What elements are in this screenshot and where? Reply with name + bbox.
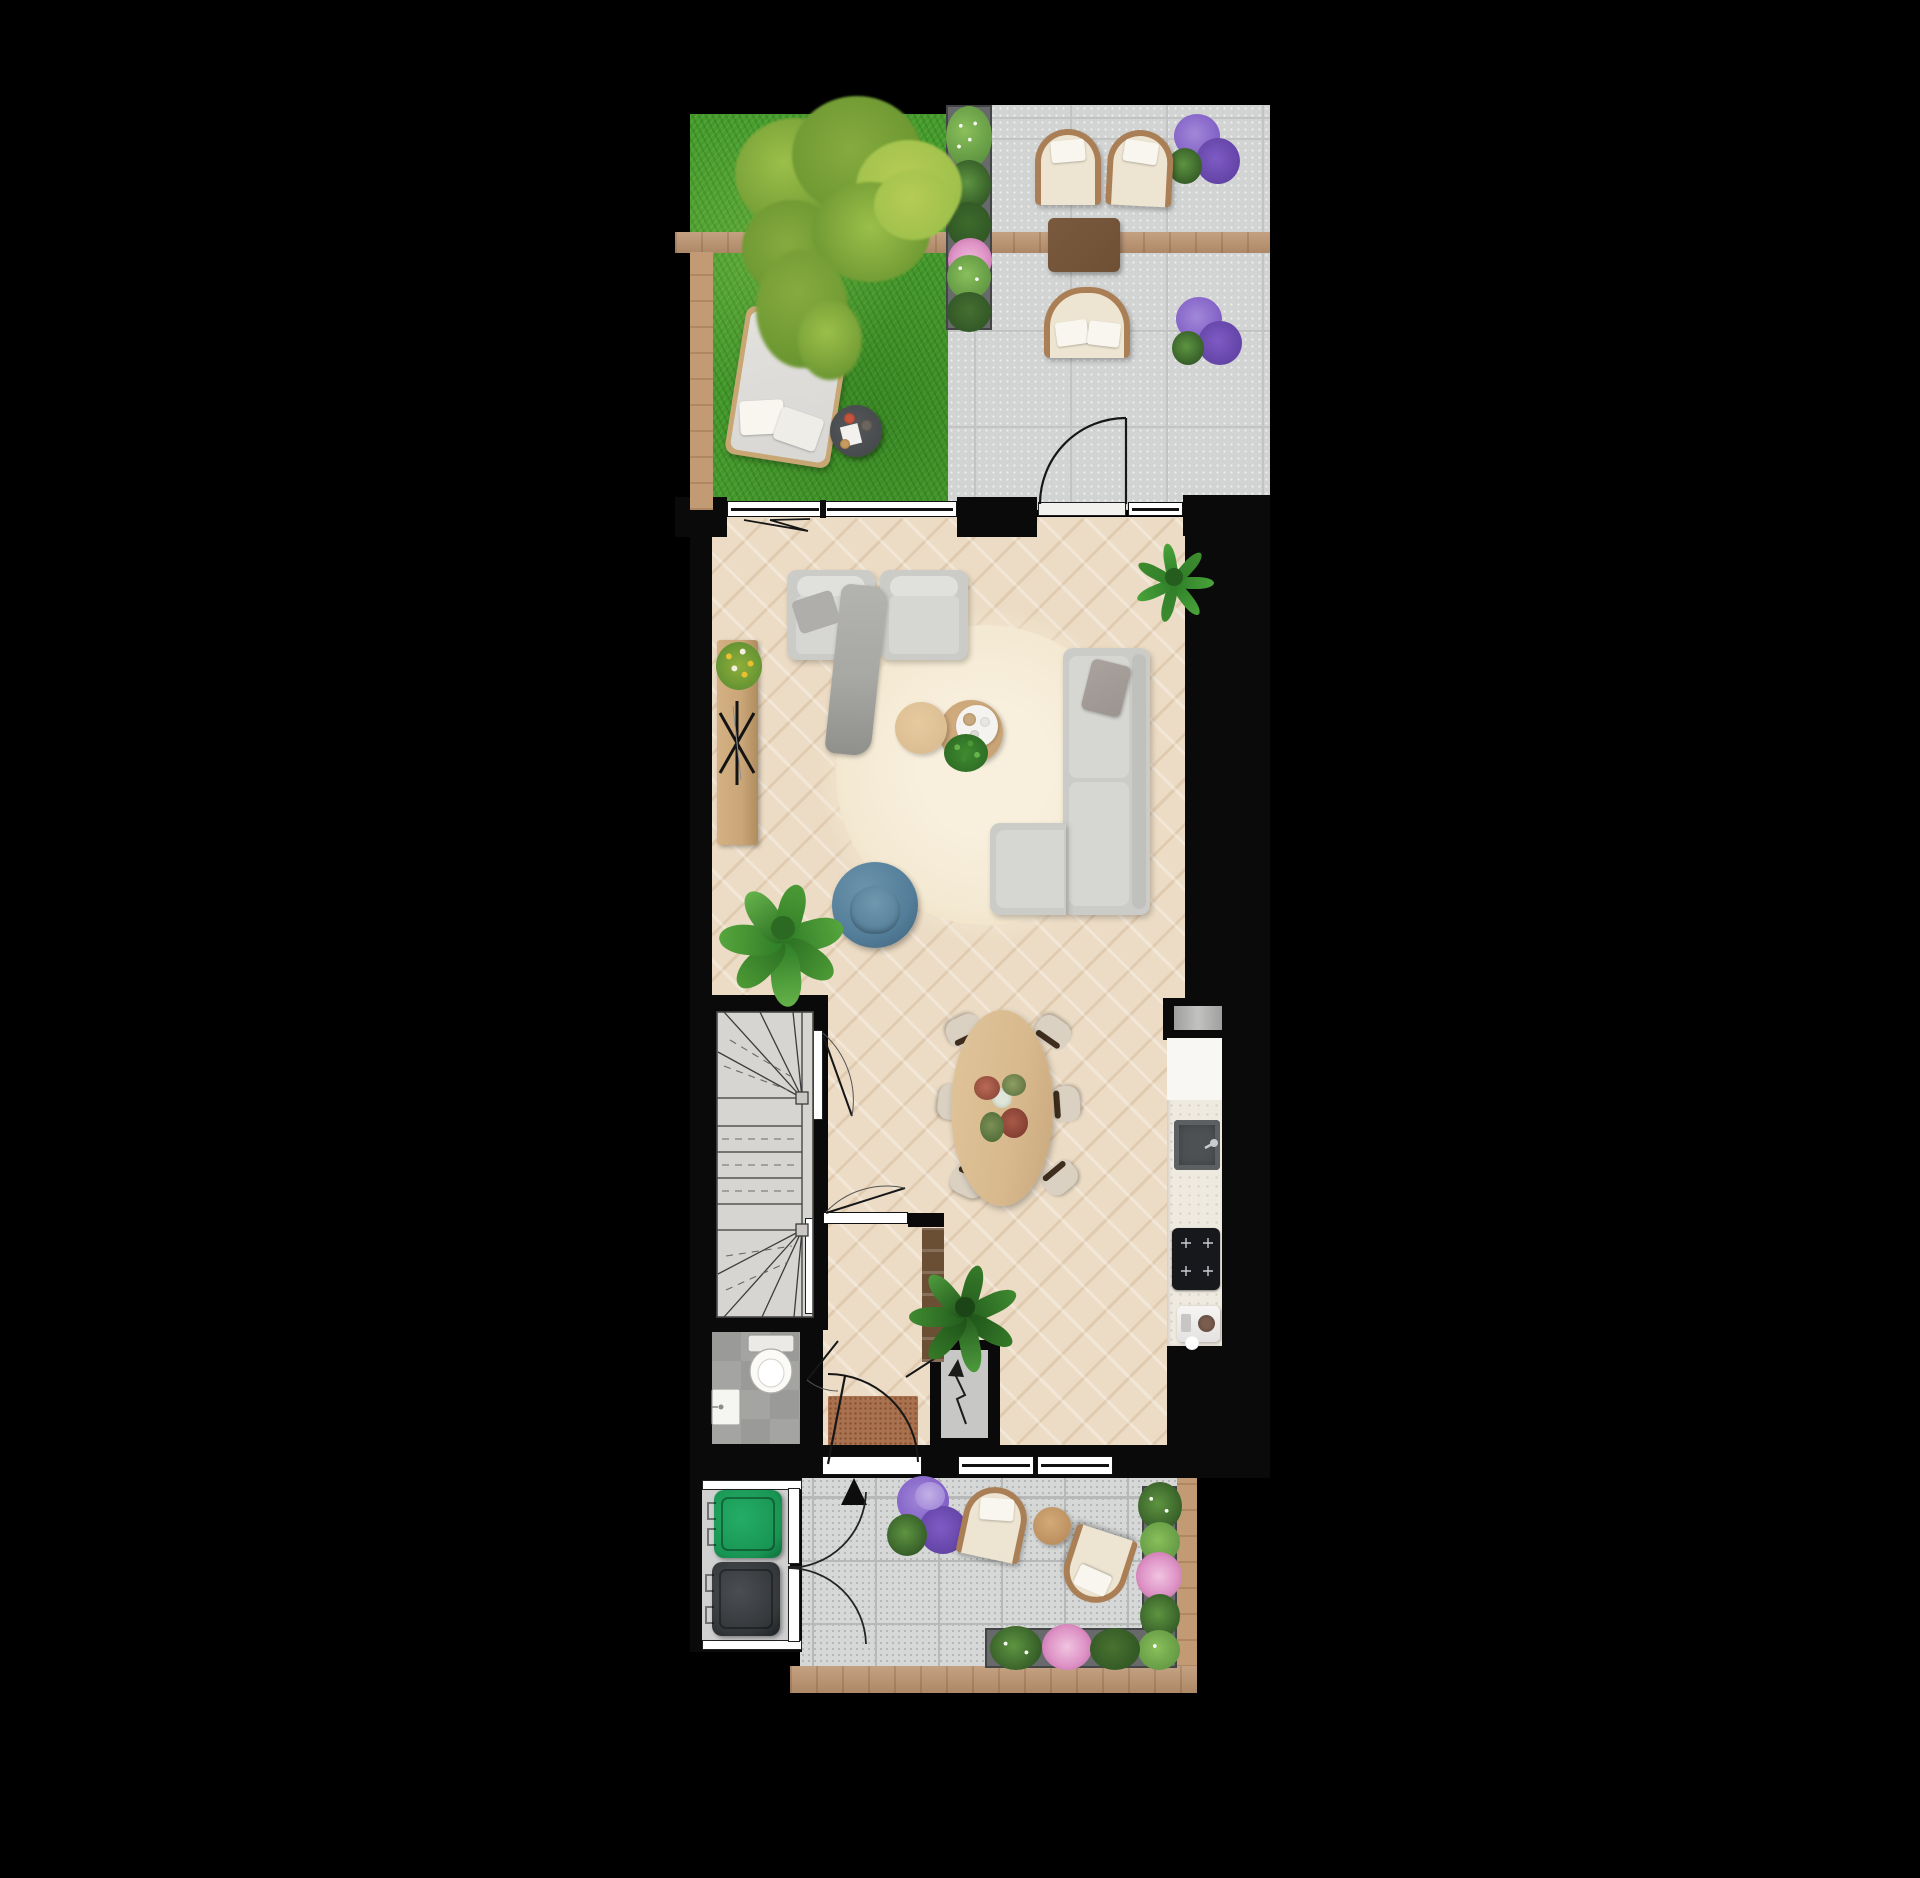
terrace-outdoor-table bbox=[1048, 218, 1120, 272]
planter-flower-pink bbox=[1136, 1552, 1182, 1600]
garden-tray-table bbox=[830, 405, 882, 457]
flower-blob bbox=[1196, 138, 1240, 184]
kitchen-house-plant bbox=[905, 1245, 1025, 1369]
bin-lid bbox=[719, 1569, 773, 1629]
fiddle-leaf-plant bbox=[713, 858, 853, 998]
plant-center bbox=[771, 916, 795, 940]
living-armchair bbox=[880, 570, 968, 660]
floor-plan-canvas bbox=[0, 0, 1920, 1878]
sofa-cushion bbox=[1069, 782, 1129, 906]
bin-handle bbox=[707, 1502, 716, 1520]
tray-cup bbox=[963, 713, 976, 726]
flower-blob bbox=[1198, 321, 1242, 365]
leaf-blob bbox=[887, 1514, 927, 1556]
terrace-lounge-chair bbox=[1105, 128, 1175, 207]
bin-handle bbox=[705, 1606, 714, 1624]
wall-pier bbox=[957, 497, 1037, 537]
flower-sprig bbox=[1002, 1074, 1026, 1096]
leaf-blob bbox=[1172, 331, 1204, 365]
kitchen-window bbox=[1037, 1456, 1113, 1475]
planter-bush bbox=[990, 1626, 1042, 1670]
chair-pillow bbox=[1122, 138, 1159, 165]
hall-door-panel bbox=[823, 1212, 908, 1224]
kitchen-counter-white-section bbox=[1167, 1038, 1222, 1100]
palm-plant bbox=[1132, 535, 1216, 619]
grey-wheelie-bin bbox=[712, 1562, 780, 1636]
yard-side-table bbox=[1033, 1507, 1071, 1545]
garden-fence-post bbox=[690, 252, 713, 510]
terrace-door-threshold bbox=[1038, 502, 1126, 516]
dining-chair bbox=[1051, 1085, 1081, 1123]
chair-pillow bbox=[1050, 139, 1086, 164]
window-jamb bbox=[820, 500, 826, 518]
bin-gate-panel bbox=[788, 1566, 800, 1642]
wall-hall-living bbox=[908, 1213, 944, 1227]
wall-left-living bbox=[690, 515, 712, 997]
induction-cooktop bbox=[1172, 1228, 1220, 1290]
kitchen-niche bbox=[1174, 1006, 1222, 1030]
wall-pier bbox=[1183, 495, 1270, 536]
armchair-back-cushion bbox=[890, 576, 958, 598]
plant-center bbox=[1165, 568, 1183, 586]
hedge-bush-dark bbox=[947, 292, 991, 332]
terrace-door-sidelight bbox=[1128, 502, 1183, 516]
terrace-loveseat-bench bbox=[1044, 287, 1130, 358]
yard-fence-bottom bbox=[790, 1666, 1197, 1693]
chaise-cushion bbox=[996, 830, 1064, 908]
coffee-table-small bbox=[895, 702, 947, 754]
sofa-backrest bbox=[1132, 654, 1146, 909]
wall-right-kitchen bbox=[1222, 1006, 1270, 1346]
flower-sprig bbox=[980, 1112, 1004, 1142]
tub-chair-seat bbox=[850, 886, 900, 934]
bin-store-wall-top bbox=[702, 1480, 802, 1490]
tulip-bouquet bbox=[716, 642, 762, 690]
bin-store-wall-bottom bbox=[702, 1640, 802, 1650]
chair-pillow bbox=[979, 1497, 1014, 1521]
armchair-seat bbox=[889, 596, 959, 654]
stair-door-jamb bbox=[813, 1030, 823, 1120]
bin-gate-panel bbox=[788, 1488, 800, 1564]
tree-foliage bbox=[874, 170, 954, 240]
bench-pillow bbox=[1087, 320, 1122, 348]
bin-lid bbox=[721, 1497, 775, 1551]
dining-centerpiece bbox=[972, 1072, 1036, 1154]
terrace-purple-flowers-top bbox=[1168, 110, 1244, 198]
bin-handle bbox=[705, 1574, 714, 1592]
hedge-flowers-white bbox=[950, 112, 986, 158]
wc-floor bbox=[712, 1332, 800, 1444]
sofa-chaise bbox=[990, 823, 1066, 915]
understairs-door bbox=[805, 1218, 814, 1314]
flower-sprig bbox=[1000, 1108, 1028, 1138]
terrace-lounge-chair bbox=[1035, 129, 1101, 205]
planter-bush bbox=[1090, 1628, 1140, 1670]
green-wheelie-bin bbox=[714, 1490, 782, 1558]
bench-pillow bbox=[1054, 319, 1089, 347]
bin-handle bbox=[707, 1528, 716, 1546]
cup bbox=[1185, 1336, 1199, 1350]
planter-flower-pink bbox=[1042, 1624, 1092, 1670]
portafilter bbox=[1198, 1315, 1215, 1332]
flower-blob bbox=[915, 1482, 945, 1510]
chair-pillow bbox=[1073, 1563, 1113, 1597]
planter-bush bbox=[1138, 1630, 1180, 1670]
kitchen-sink bbox=[1174, 1120, 1220, 1170]
stairwell-floor bbox=[717, 1012, 813, 1317]
machine-detail bbox=[1181, 1314, 1191, 1332]
living-window bbox=[823, 501, 957, 517]
tray-cup-red bbox=[844, 413, 855, 424]
espresso-machine bbox=[1177, 1306, 1220, 1342]
coffee-table-plant bbox=[944, 734, 988, 772]
tray-cup-dark bbox=[860, 419, 873, 432]
flower-sprig bbox=[974, 1076, 1000, 1100]
tray-cup-tan bbox=[840, 439, 850, 449]
plant-center bbox=[955, 1297, 975, 1317]
terrace-purple-flowers-right bbox=[1172, 295, 1248, 375]
tray-cup bbox=[980, 717, 990, 727]
tree-foliage-hanging bbox=[798, 300, 862, 380]
folding-door-glazing bbox=[727, 501, 823, 517]
